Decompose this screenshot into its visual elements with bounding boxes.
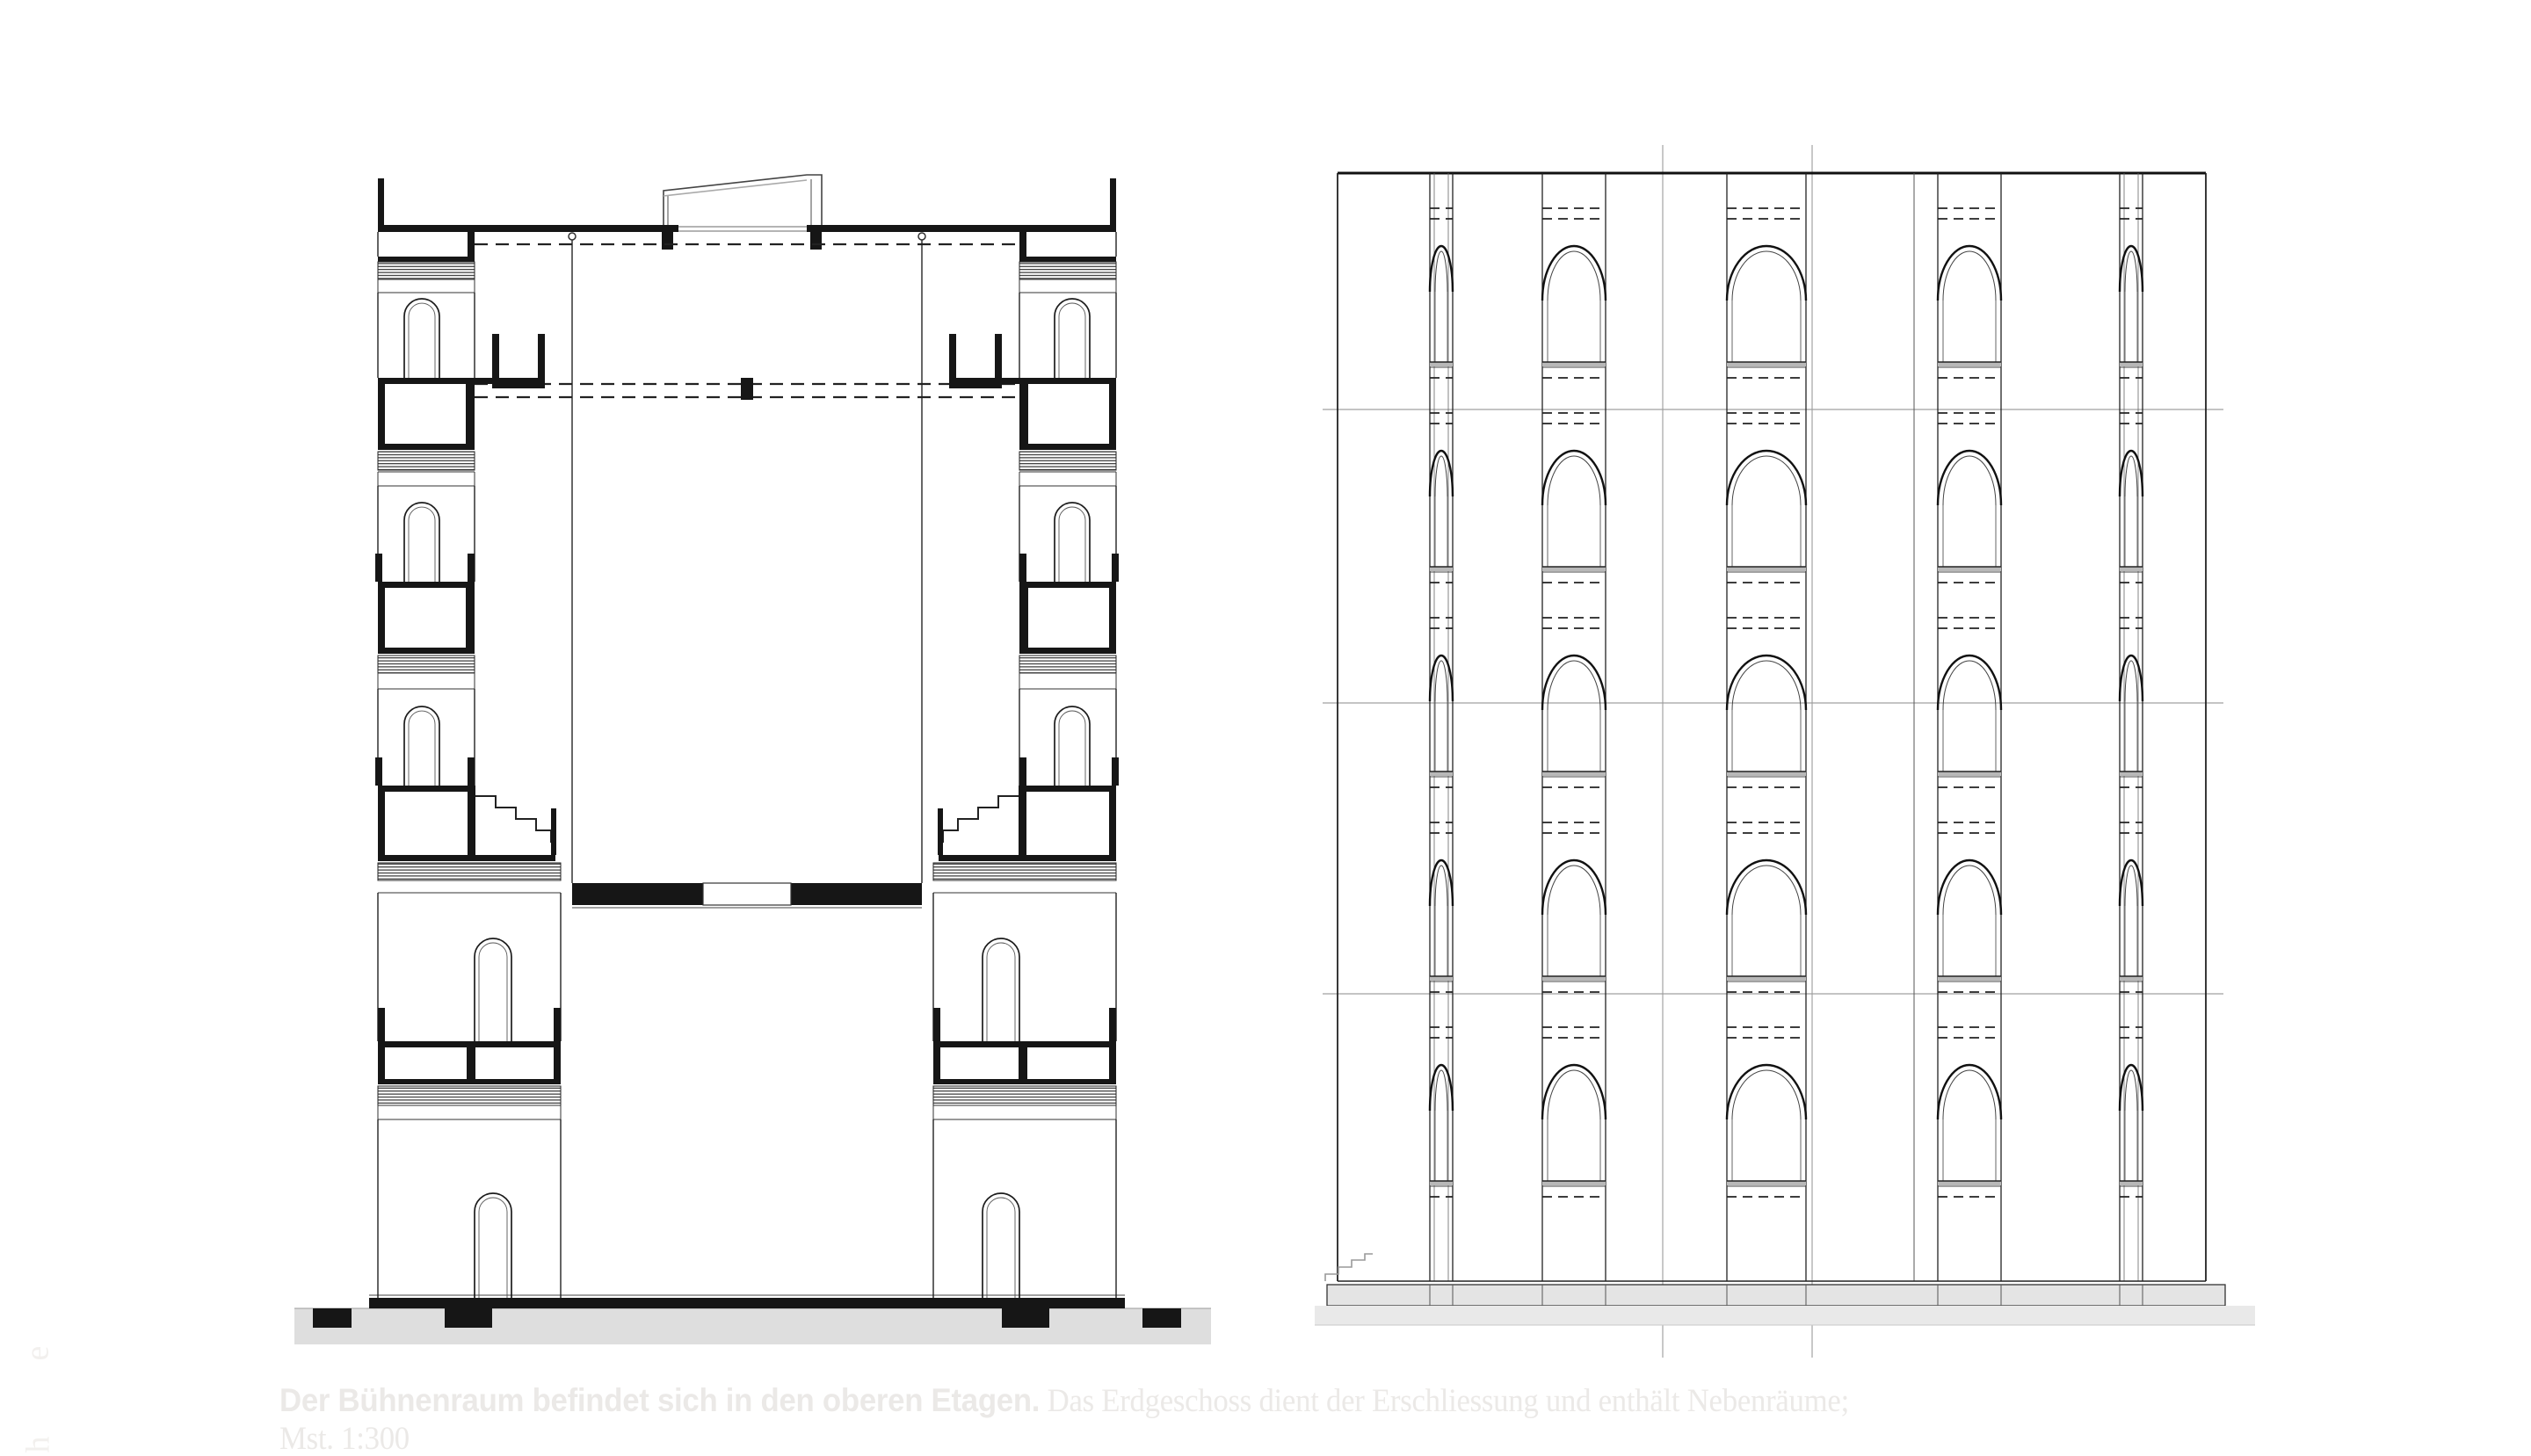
caption-scale-note: Mst. 1:300 [279, 1420, 2130, 1456]
edge-vertical-letter: e [18, 1346, 56, 1361]
architectural-drawings-canvas [0, 0, 2531, 1456]
elevation-drawing [1315, 145, 2255, 1358]
caption: Der Bühnenraum befindet sich in den ober… [279, 1381, 2130, 1456]
caption-lead: Der Bühnenraum befindet sich in den ober… [279, 1382, 1040, 1418]
edge-vertical-letter: h [19, 1437, 58, 1453]
section-drawing [294, 175, 1211, 1344]
caption-body: Das Erdgeschoss dient der Erschliessung … [1040, 1383, 1849, 1419]
book-page: Der Bühnenraum befindet sich in den ober… [0, 0, 2531, 1456]
